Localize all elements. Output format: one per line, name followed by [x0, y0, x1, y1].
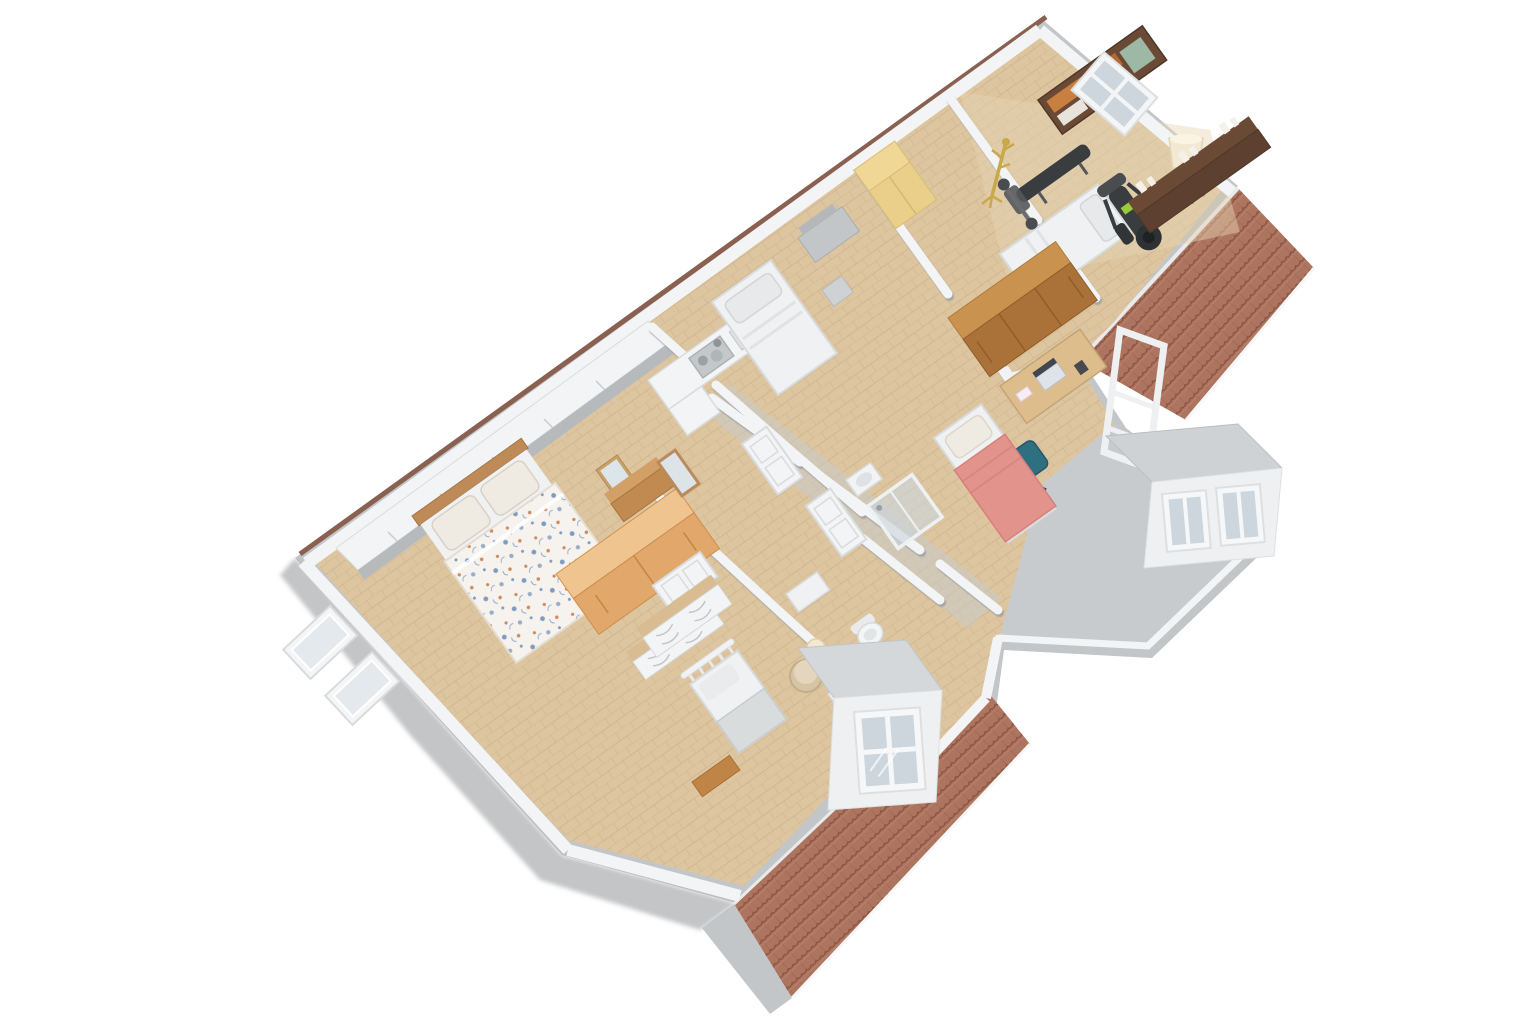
floorplan-render-canvas: [0, 0, 1536, 1024]
bottom-dormer-window: [854, 707, 926, 793]
right-dormer-window-1: [1162, 490, 1211, 552]
right-dormer-window-2: [1216, 484, 1265, 546]
floorplan-3d-scene: [0, 0, 1536, 1024]
